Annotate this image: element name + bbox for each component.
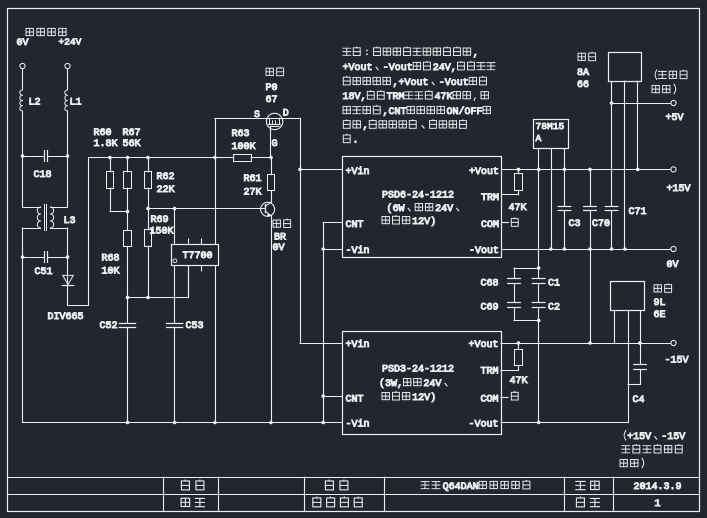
svg-text:R63: R63 — [232, 129, 250, 140]
svg-text:ON/OFF: ON/OFF — [447, 106, 483, 118]
svg-text:,CNT: ,CNT — [383, 107, 407, 118]
svg-text:COM: COM — [481, 394, 499, 405]
svg-text:+24V: +24V — [59, 37, 82, 48]
svg-text:,: , — [363, 121, 369, 132]
svg-text:24V,: 24V, — [433, 63, 457, 74]
svg-text:TRM: TRM — [481, 367, 499, 378]
svg-text:12V): 12V) — [412, 392, 436, 404]
svg-text:C18: C18 — [34, 170, 52, 181]
svg-text:-15V: -15V — [665, 355, 689, 366]
svg-text:CNT: CNT — [346, 220, 364, 231]
svg-text:L1: L1 — [70, 98, 82, 109]
svg-text:L3: L3 — [64, 216, 76, 227]
svg-text:.: . — [353, 136, 359, 147]
svg-text:-Vin: -Vin — [346, 245, 370, 257]
svg-text:47K: 47K — [510, 376, 528, 387]
svg-text:A: A — [536, 133, 542, 144]
svg-text:C2: C2 — [548, 302, 560, 313]
svg-text:,+Vout: ,+Vout — [393, 78, 429, 89]
svg-text:6E: 6E — [654, 310, 666, 321]
svg-text:L2: L2 — [29, 98, 41, 109]
svg-text:-Vin: -Vin — [346, 418, 370, 430]
svg-text:47K: 47K — [509, 203, 527, 214]
svg-text:R62: R62 — [157, 172, 175, 183]
svg-text:TRM: TRM — [387, 92, 405, 103]
svg-text:+Vin: +Vin — [346, 339, 370, 351]
svg-text:18V,: 18V, — [343, 92, 367, 103]
svg-text:C68: C68 — [481, 278, 499, 289]
svg-text:24V: 24V — [423, 379, 441, 390]
svg-text:-Vout: -Vout — [469, 419, 499, 430]
svg-text:-Vout: -Vout — [383, 63, 413, 74]
svg-text:C69: C69 — [481, 302, 499, 313]
svg-text:2014.3.9: 2014.3.9 — [634, 482, 682, 493]
svg-text:-15V: -15V — [661, 432, 685, 443]
svg-text:47K: 47K — [435, 92, 453, 103]
svg-text:78M15: 78M15 — [536, 121, 565, 132]
svg-text:PSD3-24-1212: PSD3-24-1212 — [382, 364, 454, 375]
svg-text:T7700: T7700 — [183, 251, 213, 262]
svg-text:BR: BR — [274, 232, 286, 243]
svg-text:C52: C52 — [100, 321, 118, 332]
svg-text:66: 66 — [577, 80, 589, 91]
svg-text:12V): 12V) — [412, 216, 436, 228]
svg-text:-Vout: -Vout — [439, 78, 469, 89]
svg-text:1.8K: 1.8K — [94, 139, 118, 150]
svg-text:C53: C53 — [186, 321, 204, 332]
svg-text:P0: P0 — [266, 83, 278, 94]
svg-text:+Vout: +Vout — [469, 167, 499, 178]
svg-text:R67: R67 — [123, 128, 141, 139]
svg-text:24V: 24V — [435, 204, 453, 215]
svg-text:1: 1 — [655, 499, 661, 510]
svg-text:+5V: +5V — [666, 113, 684, 124]
svg-text:C70: C70 — [592, 219, 610, 230]
svg-text:0V: 0V — [667, 260, 679, 271]
svg-text:TRM: TRM — [481, 193, 499, 204]
svg-text:Q64DAN: Q64DAN — [443, 482, 479, 493]
svg-text:+15V: +15V — [627, 432, 651, 443]
svg-text:8A: 8A — [577, 68, 589, 79]
svg-text:C4: C4 — [633, 395, 645, 406]
svg-text:COM: COM — [481, 220, 499, 231]
svg-text:+Vout: +Vout — [469, 340, 499, 351]
svg-text:G: G — [272, 139, 278, 150]
svg-text:,: , — [473, 48, 479, 59]
svg-text:+15V: +15V — [667, 184, 691, 195]
svg-text:C1: C1 — [548, 278, 560, 289]
svg-text:C71: C71 — [629, 207, 647, 218]
svg-text:67: 67 — [266, 95, 278, 106]
svg-text:CNT: CNT — [346, 394, 364, 405]
svg-text:-Vout: -Vout — [469, 246, 499, 257]
svg-text:56K: 56K — [123, 139, 141, 150]
svg-text:(6W: (6W — [387, 203, 405, 215]
svg-text:10K: 10K — [102, 266, 120, 277]
svg-text:R68: R68 — [102, 253, 120, 264]
svg-text:+Vout: +Vout — [343, 63, 373, 74]
svg-text:R61: R61 — [244, 174, 262, 185]
svg-text:R69: R69 — [151, 215, 169, 226]
svg-text:PSD6-24-1212: PSD6-24-1212 — [382, 190, 454, 201]
svg-text:150K: 150K — [150, 227, 174, 238]
svg-text:0V: 0V — [273, 243, 285, 254]
svg-text:+Vin: +Vin — [346, 166, 370, 178]
svg-text:R60: R60 — [94, 128, 112, 139]
svg-text:C3: C3 — [569, 219, 581, 230]
svg-text:S: S — [254, 110, 260, 121]
svg-text:DIV665: DIV665 — [48, 312, 84, 323]
svg-text:9L: 9L — [654, 298, 666, 309]
svg-text:(3W,: (3W, — [379, 378, 403, 390]
svg-text:0V: 0V — [17, 38, 29, 49]
svg-text:C51: C51 — [35, 267, 53, 278]
svg-text:100K: 100K — [232, 142, 256, 153]
svg-text:27K: 27K — [244, 188, 262, 199]
svg-text:22K: 22K — [157, 185, 175, 196]
